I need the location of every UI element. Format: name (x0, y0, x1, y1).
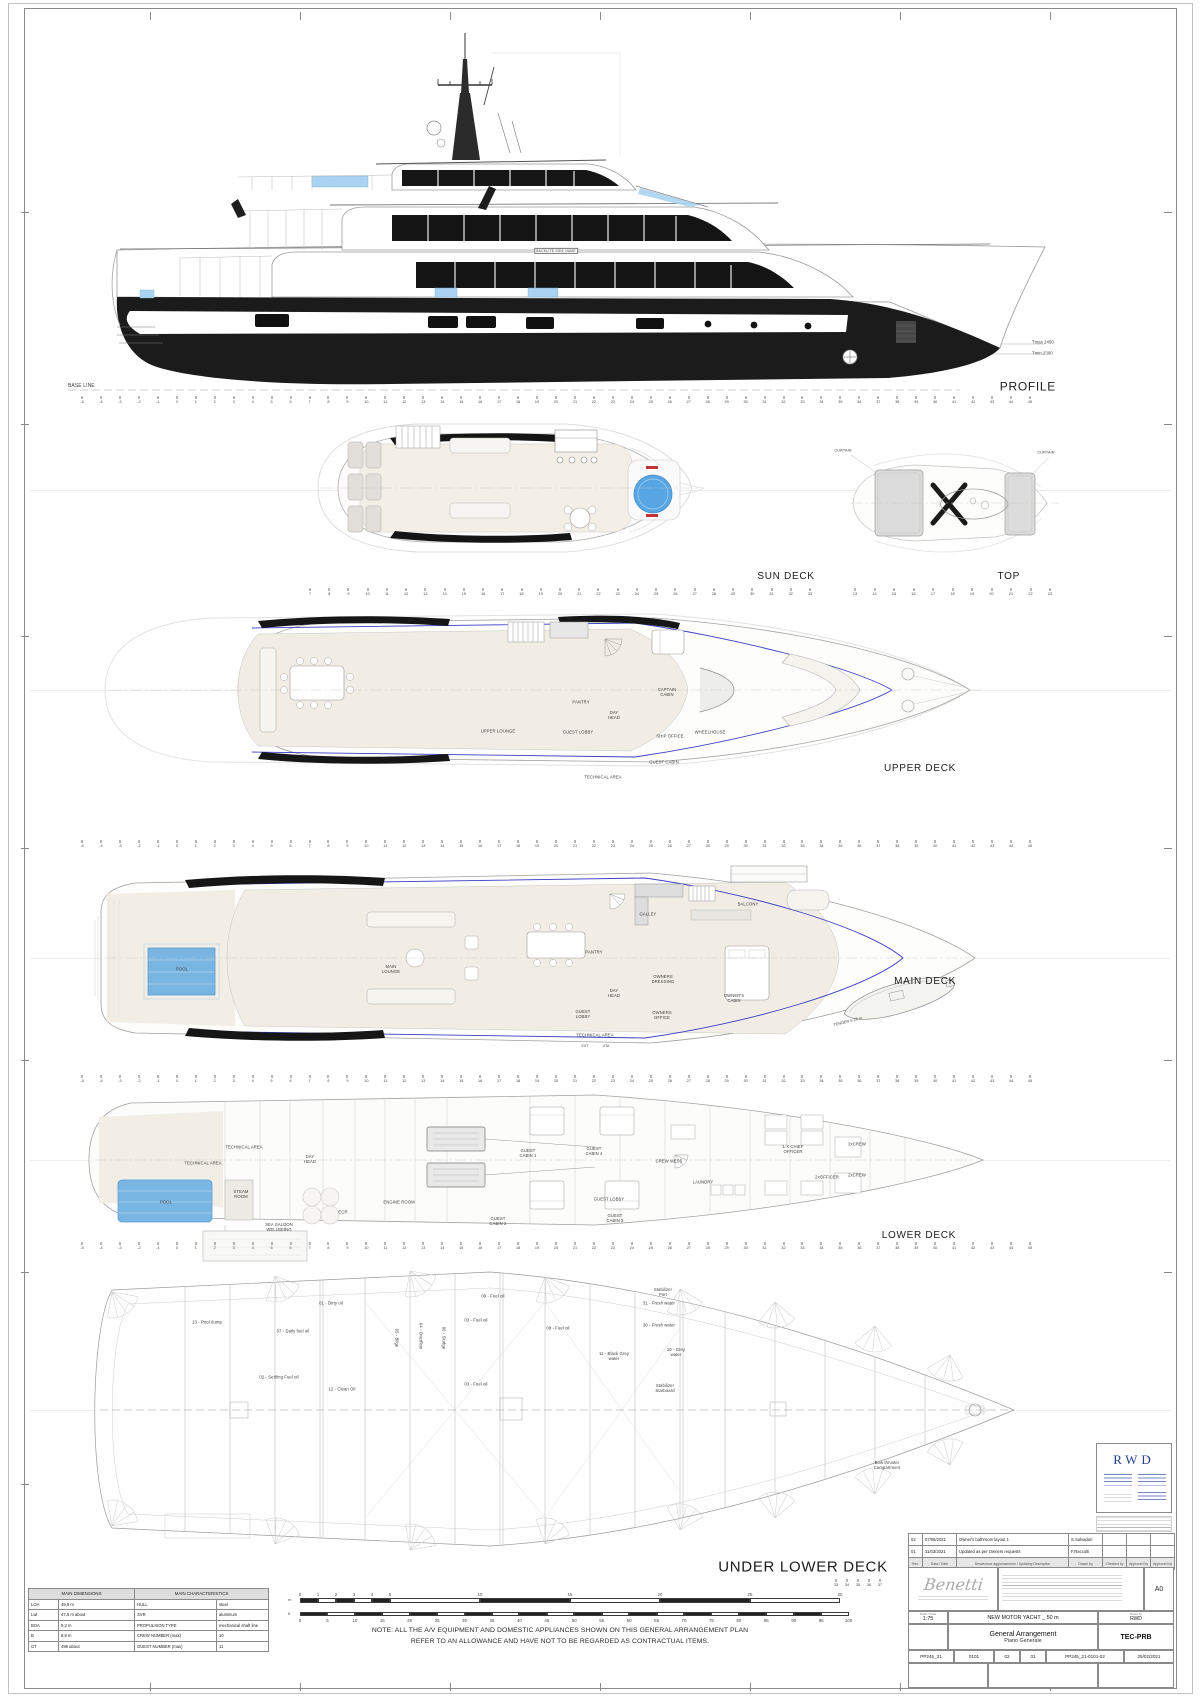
frame-tick (214, 396, 215, 399)
frame-number: 1 (195, 1246, 197, 1250)
frame-tick (821, 1242, 822, 1245)
frame-tick (973, 1075, 974, 1078)
frame-tick (631, 840, 632, 843)
frame-number: 45 (1028, 400, 1032, 404)
frame-number: 34 (819, 400, 823, 404)
frame-tick (688, 396, 689, 399)
frame-number: 36 (867, 1583, 871, 1587)
frame-number: 22 (1028, 592, 1032, 596)
frame-number: 9 (346, 844, 348, 848)
frame-number: 27 (692, 592, 696, 596)
frame-number: 33 (800, 1079, 804, 1083)
frame-tick (252, 1242, 253, 1245)
scale-metric-number: 1 (317, 1592, 319, 1597)
frame-tick (1030, 588, 1031, 591)
frame-number: 27 (687, 844, 691, 848)
frame-tick (935, 1242, 936, 1245)
dimension-key: PROPULSION TYPE (135, 1620, 217, 1631)
guest-cabin-1-label: GUEST CABIN 1 (520, 1148, 537, 1159)
frame-tick (309, 396, 310, 399)
upper-deck-title: UPPER DECK (884, 763, 956, 776)
ship-office-label: SHIP OFFICE (656, 733, 683, 738)
revision-date: 11/03/2021 (923, 1546, 957, 1558)
border-tick (1164, 212, 1172, 213)
frame-tick (913, 588, 914, 591)
frame-tick (442, 396, 443, 399)
dimension-key: GUEST NUMBER (max) (135, 1641, 217, 1652)
frame-number: 31 (762, 1246, 766, 1250)
frame-tick (480, 1075, 481, 1078)
frame-tick (480, 840, 481, 843)
dimension-key: CREW NUMBER (max) (135, 1631, 217, 1642)
frame-number: 2 (214, 1246, 216, 1250)
frame-tick (233, 1075, 234, 1078)
frame-tick (499, 1242, 500, 1245)
rwd-logo-box: RWD (1096, 1443, 1172, 1513)
frame-tick (935, 840, 936, 843)
border-tick (1164, 1272, 1172, 1273)
frame-tick (271, 396, 272, 399)
frame-number: 41 (952, 1079, 956, 1083)
frame-number: 24 (635, 592, 639, 596)
frame-tick (1011, 1242, 1012, 1245)
frame-tick (855, 588, 856, 591)
frame-tick (992, 396, 993, 399)
frame-tick (82, 1242, 83, 1245)
frame-number: 17 (497, 1246, 501, 1250)
frame-tick (790, 588, 791, 591)
scale-metric-segment (390, 1598, 480, 1603)
base-line-label: BASE LINE (68, 383, 95, 389)
laundry-label: LAUNDRY (693, 1179, 714, 1184)
frame-number: 5 (271, 1079, 273, 1083)
frame-number: 44 (1009, 400, 1013, 404)
frame-number: 26 (673, 592, 677, 596)
frame-number: 42 (971, 400, 975, 404)
frame-tick (916, 1242, 917, 1245)
dimension-key: B (29, 1631, 59, 1642)
frame-tick (745, 1075, 746, 1078)
frame-number: 13 (423, 592, 427, 596)
frame-number: 40 (933, 1246, 937, 1250)
frame-number: 38 (895, 400, 899, 404)
builder-row: Benetti A0 (908, 1567, 1174, 1611)
frame-tick (878, 396, 879, 399)
border-tick (600, 12, 601, 20)
frame-tick (119, 1075, 120, 1078)
border-tick (300, 12, 301, 20)
frame-number: 33 (800, 400, 804, 404)
frame-number: 19 (535, 1246, 539, 1250)
empty-row (908, 1663, 1174, 1688)
frame-tick (669, 1075, 670, 1078)
frame-number: 40 (933, 1079, 937, 1083)
frame-number: 1 (195, 1079, 197, 1083)
dimension-value: 47,5 m about (59, 1610, 135, 1621)
hull (117, 297, 1000, 384)
frame-tick (617, 588, 618, 591)
guest-lobby-label: GUEST LOBBY (563, 729, 594, 734)
frame-number: 19 (539, 592, 543, 596)
frame-tick (406, 588, 407, 591)
frame-tick (688, 1242, 689, 1245)
main-deck-drawing (85, 850, 990, 1065)
13-pool-dump-label: 13 - Pool dump (192, 1319, 222, 1324)
frame-number: 42 (971, 1079, 975, 1083)
sunpad-fwd (1005, 473, 1035, 535)
frame-number: 20 (558, 592, 562, 596)
frame-tick (972, 588, 973, 591)
frame-number: 23 (611, 400, 615, 404)
frame-number: 10 (364, 1246, 368, 1250)
frame-number: 0 (176, 1246, 178, 1250)
scale-feet-segment (684, 1612, 711, 1616)
dimension-value: 8,9 m (59, 1631, 135, 1642)
frame-tick (404, 1242, 405, 1245)
frame-tick (385, 396, 386, 399)
dimension-key: BOA (29, 1620, 59, 1631)
scale-feet-segment (465, 1612, 492, 1616)
frame-number: 17 (497, 400, 501, 404)
frame-number: 30 (743, 1079, 747, 1083)
guest-lobby-label: GUEST LOBBY (576, 1009, 591, 1020)
frame-number: 21 (573, 844, 577, 848)
frame-tick (461, 1075, 462, 1078)
frame-number: 30 (750, 592, 754, 596)
dimension-value: aluminum (217, 1610, 269, 1621)
frame-tick (502, 588, 503, 591)
scale-metric-number: 0 (299, 1592, 301, 1597)
frame-tick (537, 1075, 538, 1078)
frame-number: 21 (573, 1246, 577, 1250)
frame-tick (157, 396, 158, 399)
scale-metric-segment (750, 1598, 840, 1603)
frame-number: 4 (252, 400, 254, 404)
frame-tick (157, 1075, 158, 1078)
frame-number: 28 (712, 592, 716, 596)
curtain-label: CURTAIN (834, 449, 851, 454)
frame-number: 10 (364, 844, 368, 848)
doc-cell-4: PP245_21-0101-02 (1046, 1650, 1124, 1663)
frame-tick (271, 1075, 272, 1078)
frame-tick (252, 396, 253, 399)
scale-feet-number: 65 (654, 1618, 659, 1623)
scale-feet-number: 75 (709, 1618, 714, 1623)
frame-tick (688, 1075, 689, 1078)
drawn-by-value: RWD (1130, 1616, 1142, 1622)
frame-tick (157, 840, 158, 843)
frame-number: 12 (402, 844, 406, 848)
frame-number: 32 (789, 592, 793, 596)
05-bilge-label: 05 - Bilge (394, 1329, 399, 1348)
under-lower-deck-drawing (70, 1262, 1030, 1562)
frame-tick (783, 1242, 784, 1245)
frame-tick (707, 396, 708, 399)
dimensions-row: GT499 aboutGUEST NUMBER (max)11 (29, 1641, 269, 1652)
frame-number: 19 (535, 400, 539, 404)
frame-number: -5 (80, 400, 83, 404)
sun-deck-title: SUN DECK (757, 571, 814, 584)
border-tick (900, 12, 901, 20)
frame-tick (348, 588, 349, 591)
frame-number: 40 (933, 400, 937, 404)
frame-tick (442, 840, 443, 843)
upper-deck-glass (392, 215, 732, 241)
frame-tick (119, 1242, 120, 1245)
frame-tick (916, 840, 917, 843)
frame-number: 10 (366, 592, 370, 596)
frame-tick (612, 396, 613, 399)
revision-desc: Owner's bathroom layout 1 (957, 1534, 1069, 1546)
scale-feet-segment (355, 1612, 382, 1616)
frame-tick (556, 1242, 557, 1245)
frame-number: 3 (233, 844, 235, 848)
scale-feet-segment (547, 1612, 574, 1616)
frame-tick (347, 1242, 348, 1245)
frame-number: 7 (309, 592, 311, 596)
frame-tick (214, 1075, 215, 1078)
main-deck-glass (416, 262, 794, 288)
frame-tick (745, 1242, 746, 1245)
frame-number: 32 (781, 1246, 785, 1250)
frame-tick (821, 840, 822, 843)
frame-number: 31 (762, 400, 766, 404)
scale-feet-segment (410, 1612, 437, 1616)
frame-number: 18 (516, 400, 520, 404)
sea-saloon-wellbeing-label: SEA SALOON WELLBEING (265, 1222, 293, 1233)
frame-tick (195, 1075, 196, 1078)
technical-area-label: TECHNICAL AREA (225, 1144, 262, 1149)
frame-tick (593, 1242, 594, 1245)
stabilizer-port-label: Stabilizer Port (654, 1287, 672, 1298)
frame-number: 12 (402, 400, 406, 404)
frame-number: 9 (346, 1246, 348, 1250)
frame-number: -2 (137, 1246, 140, 1250)
border-tick (300, 1683, 301, 1691)
frame-number: -3 (118, 844, 121, 848)
frame-number: 39 (914, 844, 918, 848)
frame-number: 31 (769, 592, 773, 596)
frame-tick (309, 1242, 310, 1245)
frame-tick (483, 588, 484, 591)
border-tick (21, 848, 29, 849)
frame-number: 3 (233, 1246, 235, 1250)
frame-number: 33 (834, 1583, 838, 1587)
frame-number: 14 (440, 400, 444, 404)
frame-number: 25 (649, 1079, 653, 1083)
frame-number: 9 (346, 400, 348, 404)
frame-number: 6 (289, 844, 291, 848)
frame-tick (656, 588, 657, 591)
frame-tick (100, 1075, 101, 1078)
scale-feet-segment (437, 1612, 464, 1616)
frame-tick (176, 840, 177, 843)
ga-drawing-sheet: PROFILE BASE LINE BACKLITE SIDE NAME Tma… (0, 0, 1200, 1696)
scale-feet-number: 40 (517, 1618, 522, 1623)
31-fresh-water-label: 31 - Fresh water (643, 1300, 675, 1305)
drawing-code: TEC-PRB (1120, 1634, 1151, 1641)
frame-number: 45 (1028, 844, 1032, 848)
scale-feet-number: 45 (544, 1618, 549, 1623)
frame-tick (328, 840, 329, 843)
revision-desc: Updated as per Owners requests (957, 1546, 1069, 1558)
frame-tick (385, 1242, 386, 1245)
frame-number: 15 (459, 844, 463, 848)
backlite-side-name-label: BACKLITE SIDE NAME (534, 248, 578, 254)
anchor-pocket (896, 321, 916, 343)
frame-tick (840, 1075, 841, 1078)
dimension-key: LOA (29, 1599, 59, 1610)
2xcrew-label: 2xCREW (848, 1172, 866, 1177)
frame-tick (480, 396, 481, 399)
frame-tick (119, 396, 120, 399)
frame-tick (425, 588, 426, 591)
frame-number: 20 (989, 592, 993, 596)
dimension-value: 10 (217, 1631, 269, 1642)
frame-tick (935, 396, 936, 399)
frame-number: 0 (176, 1079, 178, 1083)
frame-tick (859, 1075, 860, 1078)
revision-row: 0111/03/2021Updated as per Owners reques… (909, 1546, 1175, 1558)
frame-tick (540, 588, 541, 591)
border-tick (21, 1484, 29, 1485)
frame-number: -2 (137, 844, 140, 848)
frame-tick (631, 1242, 632, 1245)
frame-tick (290, 396, 291, 399)
frame-tick (579, 588, 580, 591)
frame-tick (347, 396, 348, 399)
pantry-label: PANTRY (585, 949, 602, 954)
10-grey-water-label: 10 - Grey water (667, 1347, 685, 1358)
border-tick (21, 212, 29, 213)
frame-tick (233, 840, 234, 843)
frame-number: -4 (99, 1246, 102, 1250)
frame-tick (329, 588, 330, 591)
dimension-key: HULL (135, 1599, 217, 1610)
frame-tick (954, 396, 955, 399)
frame-number: 33 (800, 1246, 804, 1250)
disclaimer-block (1096, 1516, 1172, 1532)
frame-number: -3 (118, 1246, 121, 1250)
day-head-label: DAY HEAD (608, 710, 620, 721)
scale-metric-segment (480, 1598, 570, 1603)
upper-deck-drawing (90, 592, 990, 792)
frame-number: 22 (592, 844, 596, 848)
frame-tick (138, 1242, 139, 1245)
scale-feet-segment (739, 1612, 766, 1616)
frame-number: 8 (327, 1079, 329, 1083)
frame-number: -1 (156, 844, 159, 848)
frame-tick (537, 1242, 538, 1245)
frame-number: 42 (971, 844, 975, 848)
frame-number: 29 (725, 400, 729, 404)
frame-number: 20 (554, 1246, 558, 1250)
frame-tick (973, 1242, 974, 1245)
frame-number: 22 (592, 1079, 596, 1083)
frame-tick (423, 840, 424, 843)
frame-number: 13 (421, 844, 425, 848)
scale-feet-number: 30 (462, 1618, 467, 1623)
frame-tick (271, 840, 272, 843)
frame-number: 7 (308, 844, 310, 848)
scale-metric-number: 4 (371, 1592, 373, 1597)
frame-number: 20 (554, 1079, 558, 1083)
dimension-key: GT (29, 1641, 59, 1652)
01-dirty-oil-label: 01 - Dirty oil (319, 1300, 343, 1305)
frame-number: -3 (118, 400, 121, 404)
frame-tick (973, 396, 974, 399)
frame-tick (233, 1242, 234, 1245)
frame-tick (1011, 1075, 1012, 1078)
1-x-chief-officer-label: 1 X CHIEF OFFICER (783, 1144, 804, 1155)
frame-tick (840, 840, 841, 843)
main-lounge-label: MAIN LOUNGE (382, 964, 400, 975)
frame-tick (802, 396, 803, 399)
dimension-key: SVR (135, 1610, 217, 1621)
steam-room-label: STEAM ROOM (234, 1189, 249, 1200)
border-tick (750, 1683, 751, 1691)
scale-feet-segment (629, 1612, 656, 1616)
revision-rev: 01 (909, 1546, 923, 1558)
frame-tick (574, 396, 575, 399)
frame-number: 41 (952, 844, 956, 848)
frame-tick (745, 396, 746, 399)
frame-number: 36 (857, 400, 861, 404)
frame-tick (707, 1075, 708, 1078)
frame-tick (347, 840, 348, 843)
frame-tick (499, 396, 500, 399)
frame-tick (874, 588, 875, 591)
frame-number: 33 (800, 844, 804, 848)
scale-unit-bottom: ft (288, 1611, 290, 1616)
frame-number: 31 (762, 1079, 766, 1083)
scale-feet-segment (492, 1612, 519, 1616)
frame-number: -5 (80, 844, 83, 848)
frame-number: 8 (327, 1246, 329, 1250)
frame-tick (386, 588, 387, 591)
scale-feet-segment (602, 1612, 629, 1616)
border-tick (1164, 424, 1172, 425)
dimensions-row: BOA9,2 mPROPULSION TYPEmechanical shaft … (29, 1620, 269, 1631)
frame-tick (176, 1075, 177, 1078)
frame-number: 21 (577, 592, 581, 596)
scale-feet-segment (300, 1612, 327, 1616)
frame-number: 16 (478, 400, 482, 404)
border-tick (21, 424, 29, 425)
frame-tick (1011, 588, 1012, 591)
scale-feet-number: 15 (380, 1618, 385, 1623)
border-tick (600, 1683, 601, 1691)
technical-area-label: TECHNICAL AREA (576, 1032, 613, 1037)
frame-number: 36 (857, 1079, 861, 1083)
doc-cell-3: 01 (1020, 1650, 1046, 1663)
frame-number: 28 (706, 844, 710, 848)
scale-feet-segment (711, 1612, 738, 1616)
frame-number: 18 (516, 1246, 520, 1250)
frame-tick (878, 1075, 879, 1078)
frame-number: 35 (856, 1583, 860, 1587)
frame-number: 17 (931, 592, 935, 596)
dimension-key: Lwl (29, 1610, 59, 1621)
frame-tick (214, 1242, 215, 1245)
frame-number: 34 (819, 1246, 823, 1250)
frame-number: 11 (383, 1246, 387, 1250)
captain-cabin-label: CAPTAIN CABIN (658, 687, 677, 698)
frame-number: -2 (137, 1079, 140, 1083)
revision-approved (1127, 1534, 1151, 1546)
frame-number: 21 (573, 1079, 577, 1083)
frame-tick (783, 396, 784, 399)
